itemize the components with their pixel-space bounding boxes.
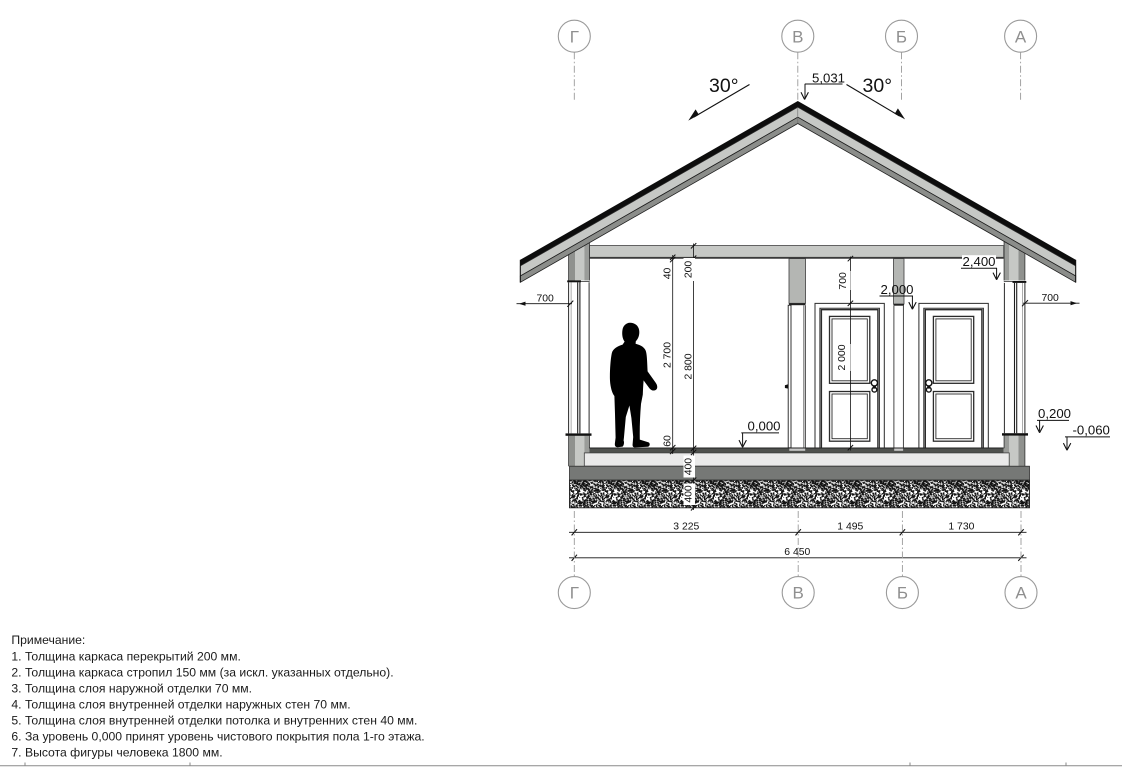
svg-text:7. Высота фигуры человека 1800: 7. Высота фигуры человека 1800 мм. [11,746,222,760]
svg-text:1 730: 1 730 [948,521,974,532]
svg-text:5,031: 5,031 [812,71,845,86]
svg-text:6 450: 6 450 [784,547,810,558]
svg-text:В: В [792,27,803,46]
svg-text:700: 700 [838,272,849,290]
svg-text:5. Толщина слоя внутренней отд: 5. Толщина слоя внутренней отделки потол… [11,714,417,728]
svg-text:0,000: 0,000 [748,419,781,434]
svg-text:3. Толщина слоя наружной отдел: 3. Толщина слоя наружной отделки 70 мм. [11,681,252,695]
svg-text:А: А [1015,27,1027,46]
svg-text:Б: Б [896,27,907,46]
svg-text:2 800: 2 800 [684,353,695,379]
svg-text:3 225: 3 225 [673,521,699,532]
svg-text:700: 700 [537,294,555,305]
svg-text:Б: Б [897,584,908,603]
svg-text:Г: Г [570,584,579,603]
svg-text:1. Толщина каркаса перекрытий: 1. Толщина каркаса перекрытий 200 мм. [11,649,240,663]
svg-text:Г: Г [570,27,579,46]
svg-text:6. За уровень 0,000 принят уро: 6. За уровень 0,000 принят уровень чисто… [11,730,424,744]
svg-text:200: 200 [684,261,695,279]
svg-text:1 495: 1 495 [837,521,863,532]
svg-text:Примечание:: Примечание: [11,633,85,647]
svg-text:В: В [793,584,804,603]
svg-text:А: А [1015,584,1027,603]
svg-text:2,000: 2,000 [881,282,914,297]
svg-text:4. Толщина слоя внутренней отд: 4. Толщина слоя внутренней отделки наруж… [11,697,350,711]
svg-text:400: 400 [684,458,695,476]
svg-text:0,200: 0,200 [1038,406,1071,421]
svg-text:2. Толщина каркаса стропил 150: 2. Толщина каркаса стропил 150 мм (за ис… [11,665,393,679]
svg-text:400: 400 [684,485,695,503]
svg-text:40: 40 [663,268,674,280]
svg-text:30°: 30° [863,75,893,97]
svg-text:60: 60 [663,435,674,447]
svg-text:2 000: 2 000 [837,344,848,370]
svg-text:700: 700 [1042,293,1060,304]
svg-text:2 700: 2 700 [663,342,674,368]
svg-text:-0,060: -0,060 [1073,423,1110,438]
svg-text:2,400: 2,400 [963,254,996,269]
